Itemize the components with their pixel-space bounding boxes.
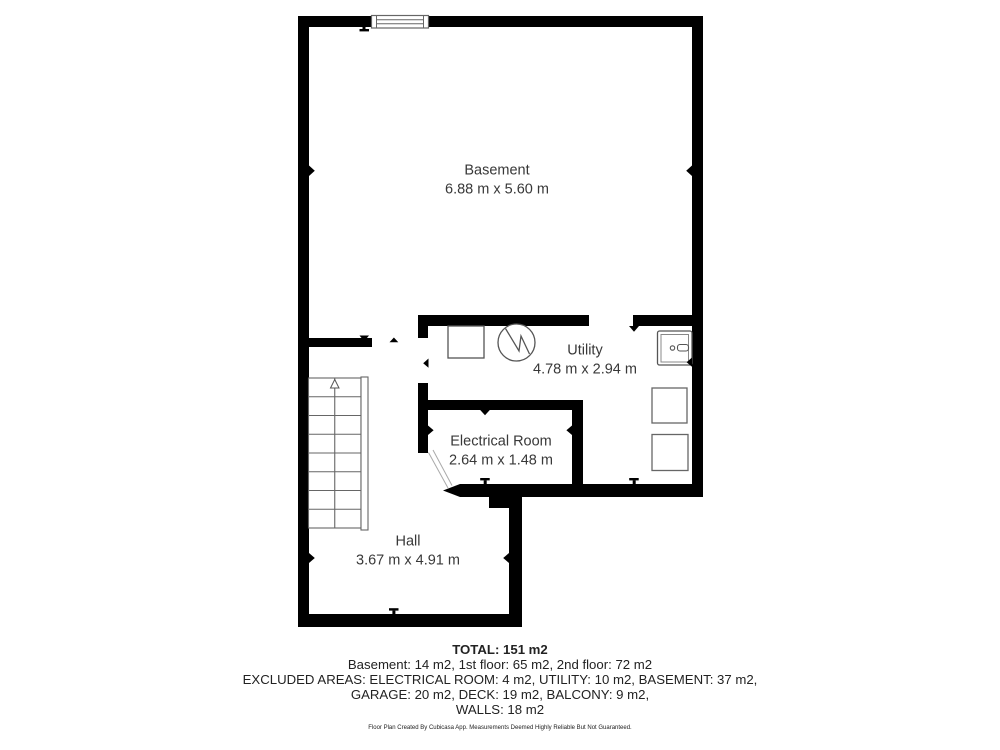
summary-total: TOTAL: 151 m2 — [0, 643, 1000, 658]
door-direction-arrow-icon — [443, 484, 460, 497]
marker-utility-bottom-stem — [633, 480, 636, 484]
wall-hall-bottom — [298, 614, 522, 627]
wall-top — [298, 16, 703, 27]
wall-divider-basement-utility-left — [418, 315, 589, 326]
storage-box-1-icon — [652, 388, 687, 423]
room-name: Utility — [533, 342, 637, 361]
room-label-electrical-room: Electrical Room 2.64 m x 1.48 m — [449, 433, 553, 470]
wall-left — [298, 16, 309, 627]
marker-hall-left — [309, 553, 315, 563]
room-dimensions: 2.64 m x 1.48 m — [449, 451, 553, 470]
marker-top-wall — [363, 27, 366, 29]
marker-hall-bottom-stem — [392, 611, 395, 615]
summary-excluded-2: GARAGE: 20 m2, DECK: 19 m2, BALCONY: 9 m… — [0, 688, 1000, 703]
room-dimensions: 4.78 m x 2.94 m — [533, 360, 637, 379]
marker-top-wall-bar — [360, 29, 370, 31]
storage-box-2-icon — [652, 435, 688, 471]
room-label-utility: Utility 4.78 m x 2.94 m — [533, 342, 637, 379]
room-name: Basement — [445, 162, 549, 181]
marker-utility-left-door — [423, 359, 428, 368]
stairs-rail — [361, 377, 368, 530]
marker-utility-doorway — [629, 326, 639, 332]
wall-hall-right — [509, 497, 522, 627]
wall-utility-left-lower — [418, 383, 428, 453]
summary-walls: WALLS: 18 m2 — [0, 703, 1000, 718]
room-dimensions: 6.88 m x 5.60 m — [445, 180, 549, 199]
room-label-hall: Hall 3.67 m x 4.91 m — [356, 533, 460, 570]
stairs-icon — [309, 377, 369, 530]
window-icon — [372, 16, 429, 29]
marker-hall-right — [503, 553, 509, 563]
wall-divider-basement-utility-right — [633, 315, 692, 326]
floorplan-drawing — [0, 0, 1000, 750]
wall-electrical-top — [418, 400, 583, 410]
water-heater-icon — [498, 324, 535, 361]
marker-passage-up — [390, 338, 399, 343]
footer-disclaimer: Floor Plan Created By Cubicasa App. Meas… — [0, 724, 1000, 732]
area-summary: TOTAL: 151 m2 Basement: 14 m2, 1st floor… — [0, 643, 1000, 718]
room-label-basement: Basement 6.88 m x 5.60 m — [445, 162, 549, 199]
marker-utility-bottom-bar — [629, 478, 639, 480]
washer-icon — [448, 326, 484, 358]
summary-excluded-1: EXCLUDED AREAS: ELECTRICAL ROOM: 4 m2, U… — [0, 673, 1000, 688]
room-name: Hall — [356, 533, 460, 552]
marker-hall-bottom-bar — [389, 608, 399, 610]
wall-electrical-right — [572, 410, 583, 497]
marker-basement-right — [686, 166, 692, 177]
wall-right — [692, 16, 703, 497]
wall-utility-left-upper — [418, 326, 428, 338]
marker-electrical-top — [480, 410, 490, 415]
marker-electrical-right — [566, 426, 572, 436]
marker-electrical-bottom-stem — [484, 480, 487, 484]
summary-floors: Basement: 14 m2, 1st floor: 65 m2, 2nd f… — [0, 658, 1000, 673]
room-dimensions: 3.67 m x 4.91 m — [356, 551, 460, 570]
wall-stairs-top-stub — [309, 338, 372, 347]
room-name: Electrical Room — [449, 433, 553, 452]
floorplan-page: Basement 6.88 m x 5.60 m Utility 4.78 m … — [0, 0, 1000, 750]
marker-electrical-left — [428, 426, 434, 436]
marker-basement-left — [309, 166, 315, 177]
storage-box-icons — [652, 388, 688, 471]
sink-icon — [658, 331, 693, 365]
marker-electrical-bottom-bar — [480, 478, 490, 480]
